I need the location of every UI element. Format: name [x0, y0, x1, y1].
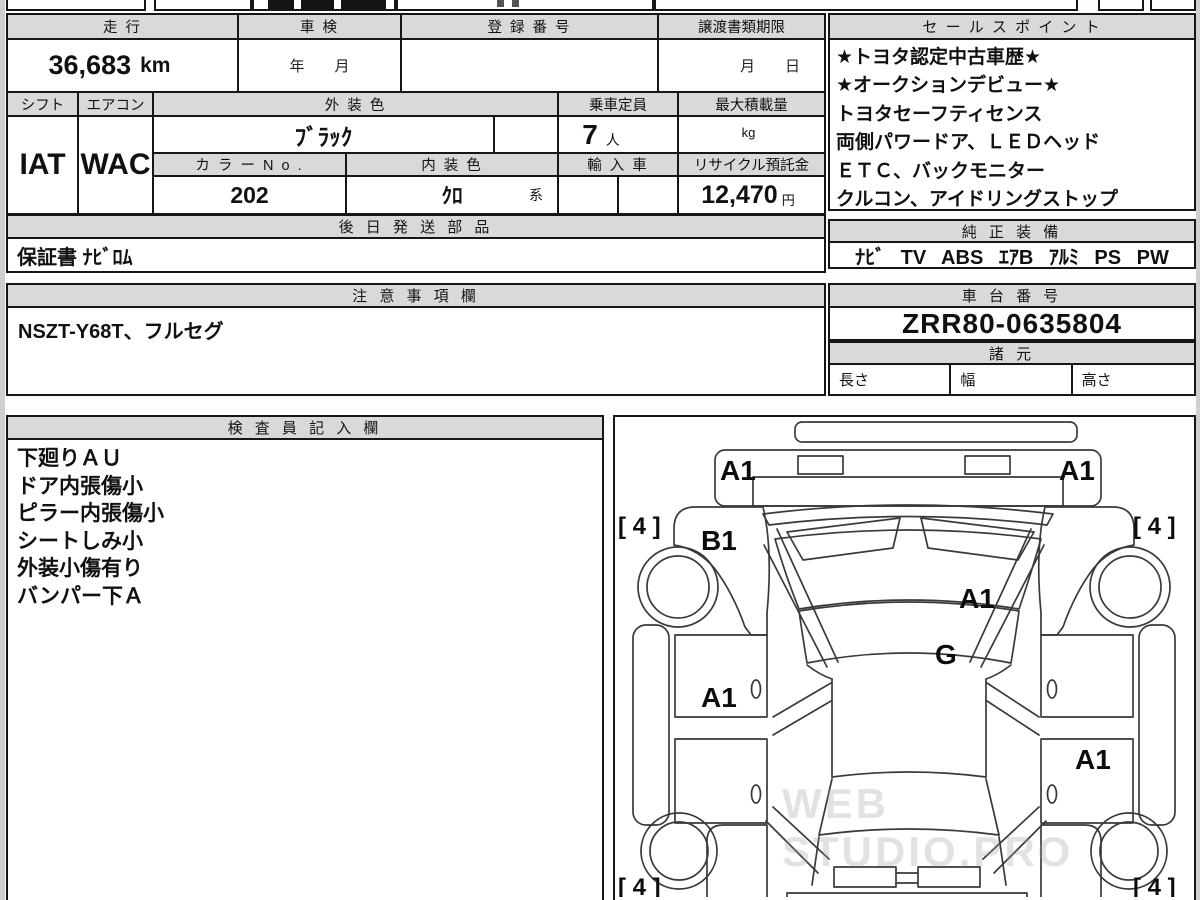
shift-value: IAT	[8, 117, 79, 213]
cropped-text-fragment	[268, 0, 294, 9]
a-pillar-left	[764, 529, 838, 667]
cropped-text-fragment	[512, 0, 519, 7]
chassis-number-value: ZRR80-0635804	[830, 308, 1194, 339]
inspector-note-line: 下廻りＡＵ	[17, 445, 593, 473]
damage-label-door-left: A1	[701, 682, 737, 713]
exterior-color-header: 外 装 色	[154, 93, 559, 117]
exterior-color-spare-cell	[495, 117, 559, 154]
door-handle-rear-right	[1048, 785, 1057, 803]
max-load-unit: kg	[679, 117, 824, 154]
front-bumper-shape	[795, 422, 1077, 442]
recycle-deposit-header: リサイクル預託金	[679, 154, 824, 177]
b-pillar-left	[773, 683, 831, 735]
chassis-number-box: 車 台 番 号 ZRR80-0635804	[828, 283, 1196, 341]
wiper-left-shape	[787, 518, 900, 560]
rear-door-left-shape	[675, 739, 767, 823]
sales-points-body: ★トヨタ認定中古車歴★ ★オークションデビュー★ トヨタセーフティセンス 両側パ…	[830, 40, 1194, 218]
door-handle-front-right	[1048, 680, 1057, 698]
mileage-value-cell: 36,683 km	[8, 40, 239, 93]
cropped-cell	[654, 0, 1078, 11]
c-pillar-left	[766, 807, 829, 873]
b-pillar-right	[987, 683, 1039, 735]
wheel-front-left-inner	[647, 556, 709, 618]
registration-header: 登 録 番 号	[402, 15, 659, 40]
interior-color-suffix: 系	[529, 185, 543, 205]
damage-label-door-right: A1	[1075, 744, 1111, 775]
cropped-cell	[1098, 0, 1144, 11]
spec-width-label: 幅	[951, 365, 1072, 394]
inspector-note-line: バンパー下Ａ	[17, 583, 593, 611]
specs-header: 諸 元	[830, 343, 1194, 365]
interior-color-value: ｸﾛ	[442, 180, 463, 210]
specs-row: 長さ 幅 高さ	[830, 365, 1194, 394]
spec-length-label: 長さ	[830, 365, 951, 394]
sales-point-line: トヨタセーフティセンス	[836, 101, 1188, 129]
mileage-header: 走 行	[8, 15, 239, 40]
interior-color-cell: ｸﾛ 系	[347, 177, 559, 213]
wheel-front-right-inner	[1099, 556, 1161, 618]
notes-box: 注 意 事 項 欄 NSZT-Y68T、フルセグ	[6, 283, 826, 396]
recycle-deposit-unit: 円	[782, 190, 795, 209]
rear-lamp-right-shape	[918, 867, 980, 887]
spec-height-label: 高さ	[1073, 365, 1194, 394]
inspector-notes-body: 下廻りＡＵ ドア内張傷小 ピラー内張傷小 シートしみ小 外装小傷有り バンパー下…	[8, 440, 602, 616]
aircon-header: エアコン	[79, 93, 154, 117]
sales-point-line: ＥＴＣ、バックモニター	[836, 158, 1188, 186]
front-panel-shape	[715, 450, 1101, 506]
tire-depth-front-left: [ 4 ]	[618, 513, 661, 540]
inspector-note-line: ピラー内張傷小	[17, 500, 593, 528]
cropped-cell	[1150, 0, 1196, 11]
sales-point-line: 両側パワードア、ＬＥＤヘッド	[836, 129, 1188, 157]
sales-point-line: ★トヨタ認定中古車歴★	[836, 44, 1188, 72]
cropped-text-fragment	[497, 0, 504, 7]
recycle-deposit-value: 12,470	[701, 181, 777, 210]
tire-depth-rear-right: [ 4 ]	[1133, 874, 1176, 897]
wheel-front-left	[638, 547, 718, 627]
rear-bumper-shape	[787, 893, 1027, 897]
wheel-rear-right-inner	[1100, 822, 1158, 880]
inspector-notes-box: 検 査 員 記 入 欄 下廻りＡＵ ドア内張傷小 ピラー内張傷小 シートしみ小 …	[6, 415, 604, 900]
inspector-note-line: ドア内張傷小	[17, 473, 593, 501]
import-car-header: 輸 入 車	[559, 154, 679, 177]
cropped-cell	[396, 0, 654, 11]
notes-header: 注 意 事 項 欄	[8, 285, 824, 308]
rear-hatch-sides	[812, 837, 1006, 885]
later-parts-value: 保証書 ﾅﾋﾞﾛﾑ	[8, 239, 824, 271]
cropped-text-fragment	[301, 0, 334, 9]
interior-color-header: 内 装 色	[347, 154, 559, 177]
genuine-equipment-box: 純 正 装 備 ﾅﾋﾞ TV ABS ｴｱB ｱﾙﾐ PS PW	[828, 219, 1196, 269]
door-handle-rear-left	[752, 785, 761, 803]
roof-join-left	[807, 665, 832, 679]
recycle-deposit-cell: 12,470 円	[679, 177, 824, 213]
notes-value: NSZT-Y68T、フルセグ	[8, 308, 824, 394]
sill-left-shape	[633, 625, 669, 825]
shift-header: シフト	[8, 93, 79, 117]
capacity-value-cell: 7 人	[559, 117, 679, 154]
rear-window-sides	[819, 779, 999, 835]
inspector-note-line: シートしみ小	[17, 528, 593, 556]
transfer-deadline-header: 譲渡書類期限	[659, 15, 824, 40]
roof-join-right	[986, 665, 1011, 679]
import-car-cell-2	[619, 177, 679, 213]
damage-label-glass: G	[935, 639, 957, 670]
front-door-right-shape	[1041, 635, 1133, 717]
damage-label-front-left: A1	[720, 455, 756, 486]
max-load-header: 最大積載量	[679, 93, 824, 117]
tire-depth-front-right: [ 4 ]	[1133, 513, 1176, 540]
sales-points-box: セ ー ル ス ポ イ ン ト ★トヨタ認定中古車歴★ ★オークションデビュー★…	[828, 13, 1196, 211]
genuine-equipment-value: ﾅﾋﾞ TV ABS ｴｱB ｱﾙﾐ PS PW	[830, 243, 1194, 267]
sales-point-line: ★オークションデビュー★	[836, 72, 1188, 100]
transfer-value: 月 日	[659, 40, 824, 93]
chassis-number-header: 車 台 番 号	[830, 285, 1194, 308]
sales-point-line: クルコン、アイドリングストップ	[836, 186, 1188, 214]
aircon-value: WAC	[79, 117, 154, 213]
registration-value	[402, 40, 659, 93]
roof-rear-curve	[832, 772, 986, 777]
wheel-rear-left-inner	[650, 822, 708, 880]
right-scan-edge	[1196, 0, 1200, 900]
mileage-value: 36,683	[49, 50, 132, 81]
auction-sheet: 走 行 車 検 登 録 番 号 譲渡書類期限 36,683 km 年 月 月 日…	[0, 0, 1200, 900]
sales-points-header: セ ー ル ス ポ イ ン ト	[830, 15, 1194, 40]
shaken-header: 車 検	[239, 15, 402, 40]
capacity-header: 乗車定員	[559, 93, 679, 117]
rear-window-curve	[819, 829, 999, 835]
inspector-note-line: 外装小傷有り	[17, 555, 593, 583]
color-no-header: カ ラ ー N o .	[154, 154, 347, 177]
damage-label-hood: A1	[959, 583, 995, 614]
later-parts-box: 後 日 発 送 部 品 保証書 ﾅﾋﾞﾛﾑ	[6, 214, 826, 273]
headlight-left-shape	[798, 456, 843, 474]
cropped-text-fragment	[341, 0, 386, 9]
color-no-value: 202	[154, 177, 347, 213]
damage-label-front-right: A1	[1059, 455, 1095, 486]
headlight-right-shape	[965, 456, 1010, 474]
c-pillar-right	[983, 807, 1046, 873]
capacity-value: 7	[582, 119, 598, 151]
exterior-color-value: ﾌﾞﾗｯｸ	[154, 117, 495, 154]
sill-right-shape	[1139, 625, 1175, 825]
wiper-right-shape	[921, 518, 1034, 560]
car-damage-diagram-box: A1 A1 B1 A1 G A1 A1 [ 4 ] [ 4 ] [ 4 ] [ …	[613, 415, 1196, 900]
cropped-cell	[6, 0, 146, 11]
specs-box: 諸 元 長さ 幅 高さ	[828, 341, 1196, 396]
cropped-cell	[154, 0, 252, 11]
door-handle-front-left	[752, 680, 761, 698]
wheel-front-right	[1090, 547, 1170, 627]
tire-depth-rear-left: [ 4 ]	[618, 874, 661, 897]
inspector-notes-header: 検 査 員 記 入 欄	[8, 417, 602, 440]
shaken-value: 年 月	[239, 40, 402, 93]
capacity-unit: 人	[606, 130, 620, 150]
vehicle-data-table: 走 行 車 検 登 録 番 号 譲渡書類期限 36,683 km 年 月 月 日…	[6, 13, 826, 215]
mileage-unit: km	[140, 54, 170, 78]
import-car-cell-1	[559, 177, 619, 213]
left-scan-edge	[0, 0, 5, 900]
damage-label-fender-left: B1	[701, 525, 737, 556]
grille-shape	[753, 477, 1063, 506]
windshield-shape	[775, 530, 1041, 609]
cowl-strip-shape	[763, 505, 1053, 525]
car-outline-diagram: A1 A1 B1 A1 G A1 A1 [ 4 ] [ 4 ] [ 4 ] [ …	[615, 417, 1193, 897]
rear-lamp-left-shape	[834, 867, 896, 887]
later-parts-header: 後 日 発 送 部 品	[8, 216, 824, 239]
rear-lamp-connector	[896, 873, 918, 883]
